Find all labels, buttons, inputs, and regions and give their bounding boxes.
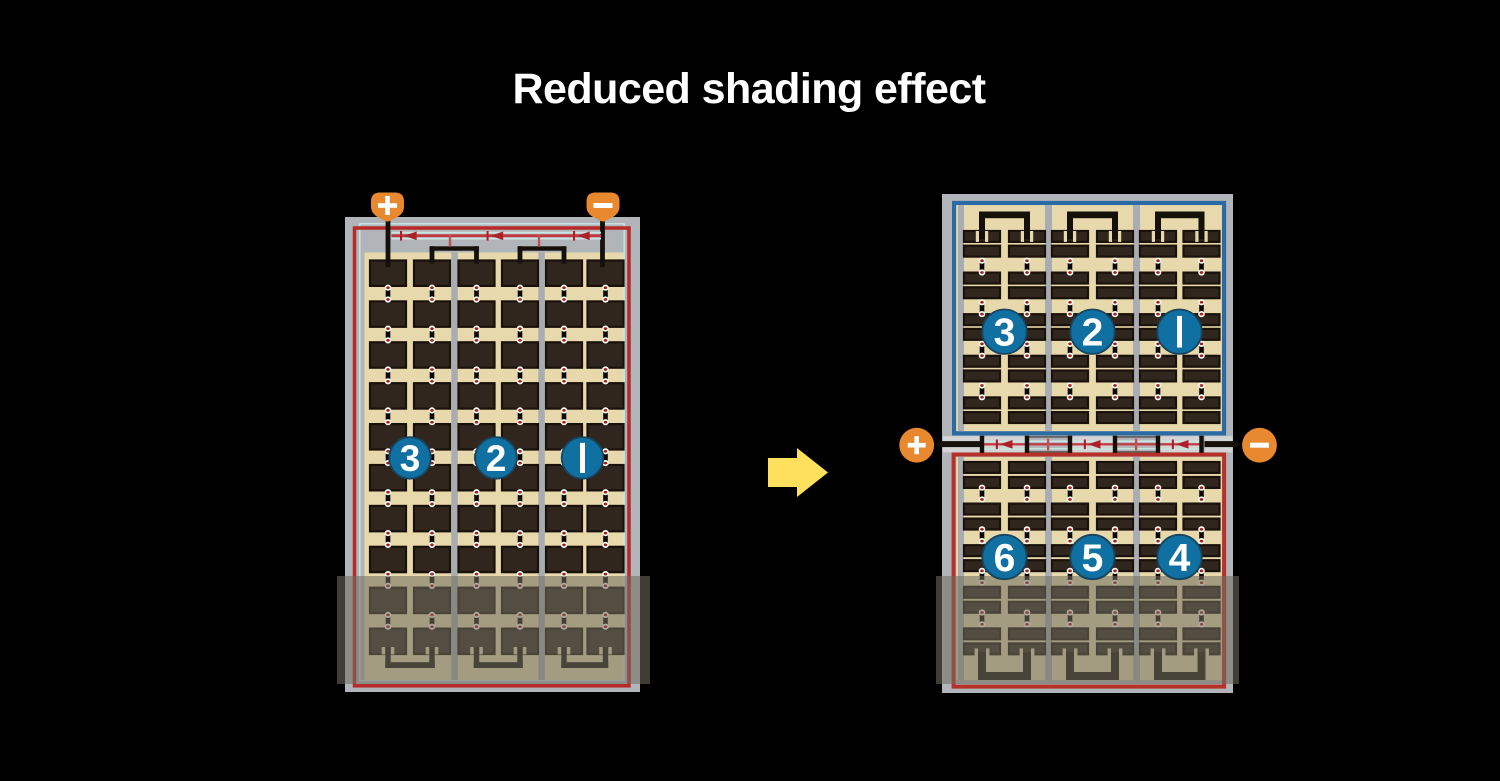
svg-text:3: 3	[994, 312, 1016, 355]
svg-text:5: 5	[1082, 537, 1104, 580]
svg-text:2: 2	[1082, 312, 1104, 355]
svg-text:4: 4	[1169, 537, 1191, 580]
svg-text:3: 3	[400, 438, 421, 479]
svg-text:Reduced shading effect: Reduced shading effect	[513, 65, 986, 113]
svg-text:6: 6	[994, 537, 1016, 580]
svg-text:2: 2	[486, 438, 507, 479]
